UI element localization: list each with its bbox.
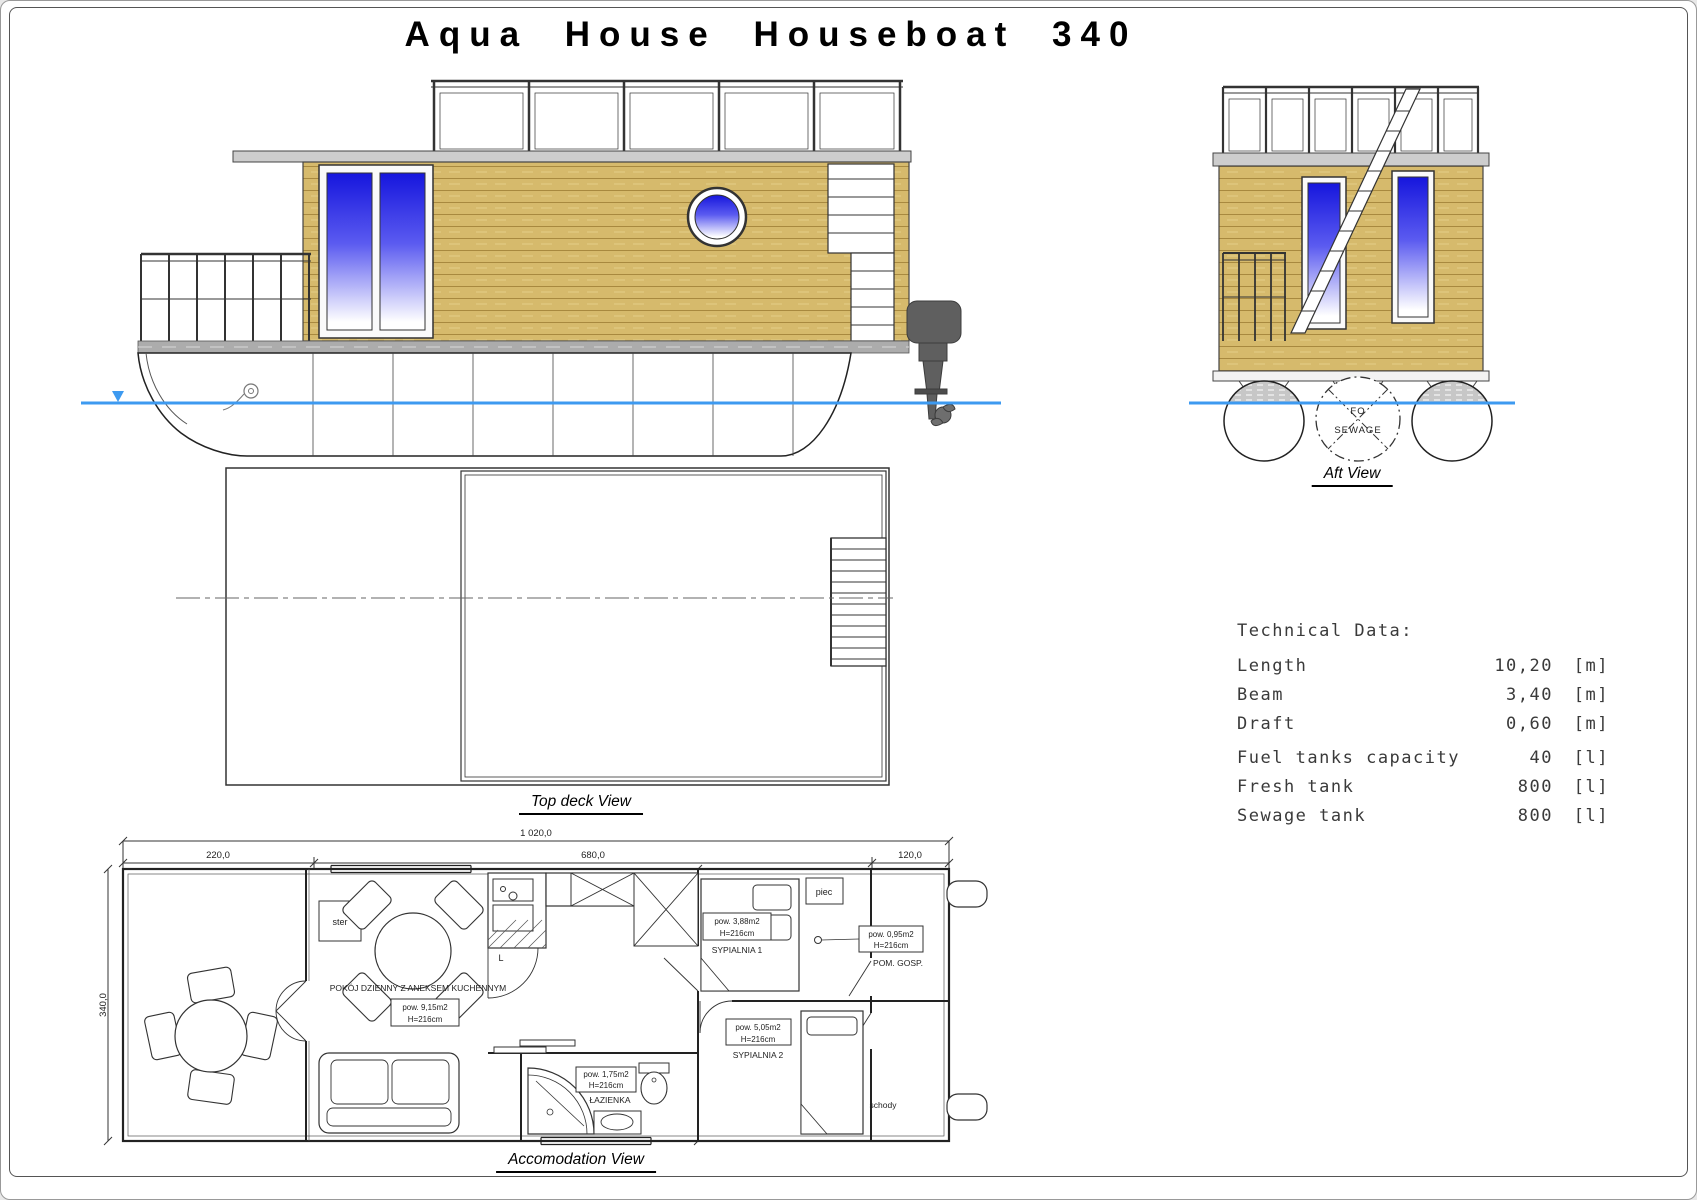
fender-tab-bottom xyxy=(947,1094,987,1120)
entrance-door xyxy=(319,165,433,338)
aft-top-railing xyxy=(1223,87,1479,153)
sofa xyxy=(319,1053,459,1133)
svg-text:H=216cm: H=216cm xyxy=(589,1081,624,1090)
bathroom-area-box: pow. 1,75m2 H=216cm xyxy=(576,1067,636,1092)
top-deck-drawing xyxy=(171,461,911,801)
svg-text:H=216cm: H=216cm xyxy=(874,941,909,950)
dim-overall: 1 020,0 xyxy=(520,828,552,839)
tech-row-sewage: Sewage tank 800 [l] xyxy=(1237,806,1609,826)
accommodation-drawing: 1 020,0 220,0 680,0 120,0 340,0 144,0 70… xyxy=(86,796,1006,1186)
svg-text:pow. 5,05m2: pow. 5,05m2 xyxy=(735,1023,781,1032)
tech-row-length: Length 10,20 [m] xyxy=(1237,656,1609,676)
porthole-window xyxy=(688,188,746,246)
dim-bow: 220,0 xyxy=(206,850,230,861)
living-room-name: POKÓJ DZIENNY Z ANEKSEM KUCHENNYM xyxy=(330,983,506,993)
stove-box: piec xyxy=(806,878,843,904)
aft-view-drawing: FO SEWAGE xyxy=(1181,71,1521,501)
tech-row-fuel: Fuel tanks capacity 40 [l] xyxy=(1237,748,1609,768)
living-room-area-box: pow. 9,15m2 H=216cm xyxy=(391,999,459,1026)
svg-text:pow. 1,75m2: pow. 1,75m2 xyxy=(583,1070,629,1079)
utility-name: POM. GOSP. xyxy=(873,958,923,968)
deck-stairs xyxy=(831,538,886,666)
bow-deck-railing xyxy=(141,254,311,341)
outboard-motor xyxy=(907,301,961,426)
tech-row-draft: Draft 0,60 [m] xyxy=(1237,714,1609,734)
waterline-marker-icon xyxy=(112,391,124,402)
tank-label-sewage: SEWAGE xyxy=(1334,425,1381,436)
tech-row-beam: Beam 3,40 [m] xyxy=(1237,685,1609,705)
svg-text:piec: piec xyxy=(816,887,833,897)
dim-beam: 340,0 xyxy=(98,993,109,1017)
bathroom-name: ŁAZIENKA xyxy=(589,1095,630,1105)
deck-outline xyxy=(226,468,889,785)
kitchen-letter: L xyxy=(498,953,503,963)
tank-label-fo: FO xyxy=(1350,406,1365,417)
stairs-label: schody xyxy=(870,1100,898,1110)
svg-text:H=216cm: H=216cm xyxy=(408,1015,443,1024)
technical-data-heading: Technical Data: xyxy=(1237,621,1609,641)
roof-slab xyxy=(233,151,911,162)
dim-cabin: 680,0 xyxy=(581,850,605,861)
pontoon-right xyxy=(1412,381,1492,461)
drawing-sheet: Aqua House Houseboat 340 xyxy=(0,0,1697,1200)
bedroom2-name: SYPIALNIA 2 xyxy=(733,1050,784,1060)
bedroom2-area-box: pow. 5,05m2 H=216cm xyxy=(726,1019,791,1045)
aft-window xyxy=(1392,171,1434,323)
fender-tab-top xyxy=(947,881,987,907)
side-view-drawing xyxy=(81,71,1011,501)
technical-data: Technical Data: Length 10,20 [m] Beam 3,… xyxy=(1237,621,1609,835)
svg-text:H=216cm: H=216cm xyxy=(741,1035,776,1044)
deck-platform xyxy=(138,341,909,353)
page-title: Aqua House Houseboat 340 xyxy=(1,15,1541,55)
pontoon-left xyxy=(1224,381,1304,461)
svg-text:pow. 3,88m2: pow. 3,88m2 xyxy=(714,917,760,926)
svg-text:pow. 0,95m2: pow. 0,95m2 xyxy=(868,930,914,939)
bedroom1-name: SYPIALNIA 1 xyxy=(712,945,763,955)
dim-stern: 120,0 xyxy=(898,850,922,861)
helm-label: ster xyxy=(332,917,347,927)
aft-roof-slab xyxy=(1213,153,1489,166)
aft-cabin-wall xyxy=(1219,166,1483,371)
aft-view-label: Aft View xyxy=(1312,465,1393,487)
tech-row-fresh: Fresh tank 800 [l] xyxy=(1237,777,1609,797)
accommodation-view-label: Accomodation View xyxy=(496,1151,656,1173)
sewage-tank-circle: FO SEWAGE xyxy=(1316,377,1400,461)
svg-text:pow. 9,15m2: pow. 9,15m2 xyxy=(402,1003,448,1012)
bedroom1-area-box: pow. 3,88m2 H=216cm xyxy=(703,913,771,940)
top-deck-railing xyxy=(431,81,903,151)
svg-text:H=216cm: H=216cm xyxy=(720,929,755,938)
bedroom2 xyxy=(801,1011,863,1134)
